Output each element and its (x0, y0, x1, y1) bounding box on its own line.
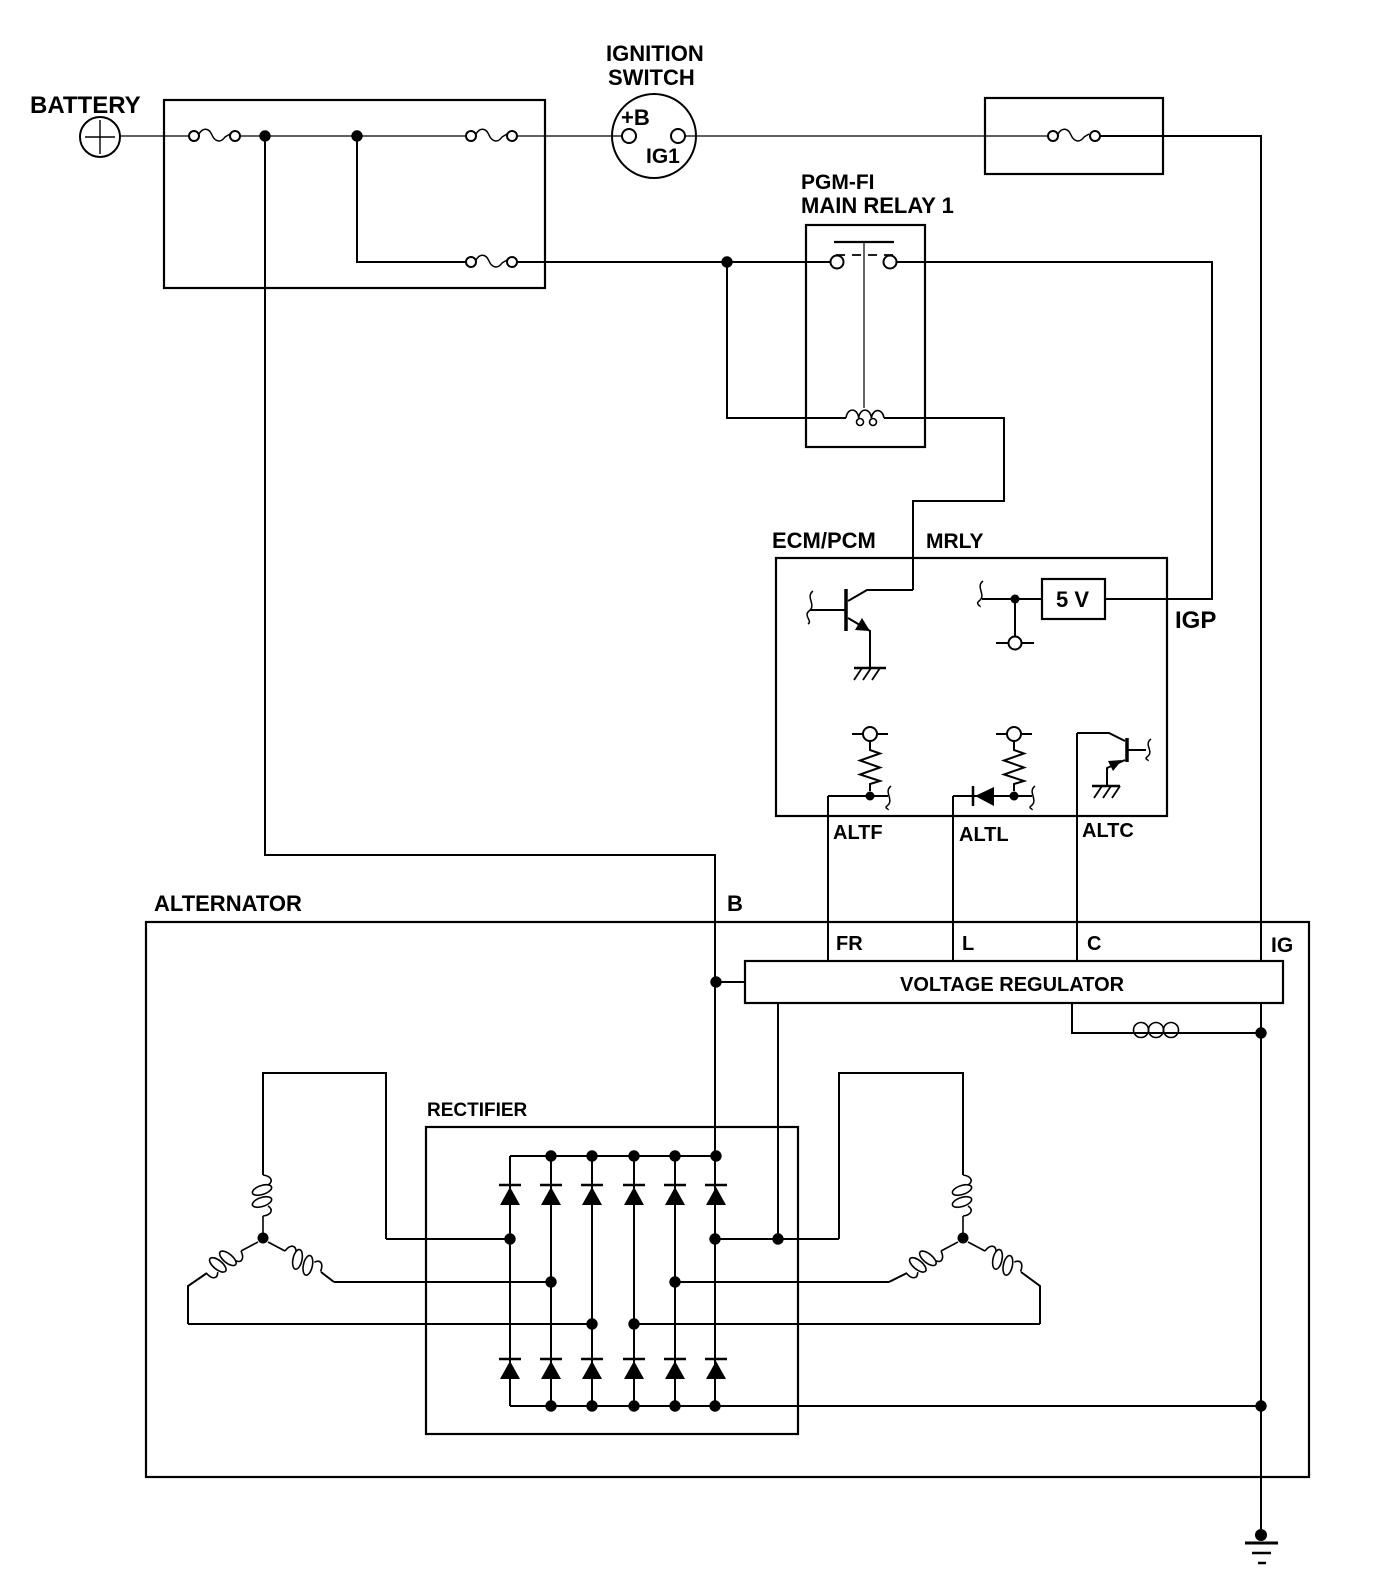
svg-text:BATTERY: BATTERY (30, 92, 141, 119)
svg-text:IG: IG (1271, 934, 1293, 957)
svg-text:5 V: 5 V (1056, 587, 1089, 612)
svg-text:MAIN RELAY 1: MAIN RELAY 1 (801, 193, 954, 218)
svg-text:ALTERNATOR: ALTERNATOR (154, 891, 302, 916)
svg-text:VOLTAGE REGULATOR: VOLTAGE REGULATOR (900, 974, 1125, 996)
svg-text:MRLY: MRLY (926, 530, 984, 553)
svg-text:ECM/PCM: ECM/PCM (772, 528, 876, 553)
svg-text:IG1: IG1 (646, 145, 680, 168)
svg-text:RECTIFIER: RECTIFIER (427, 1100, 528, 1121)
svg-text:IGP: IGP (1175, 607, 1216, 634)
svg-text:SWITCH: SWITCH (608, 65, 695, 90)
svg-text:IGNITION: IGNITION (606, 41, 704, 66)
svg-text:ALTF: ALTF (833, 822, 883, 844)
svg-text:C: C (1087, 933, 1101, 955)
svg-text:+B: +B (621, 105, 650, 130)
svg-text:L: L (962, 933, 974, 955)
svg-text:PGM-FI: PGM-FI (801, 171, 875, 194)
svg-text:ALTL: ALTL (959, 824, 1009, 846)
svg-text:B: B (727, 891, 743, 916)
svg-text:ALTC: ALTC (1082, 820, 1134, 842)
svg-text:FR: FR (836, 933, 863, 955)
